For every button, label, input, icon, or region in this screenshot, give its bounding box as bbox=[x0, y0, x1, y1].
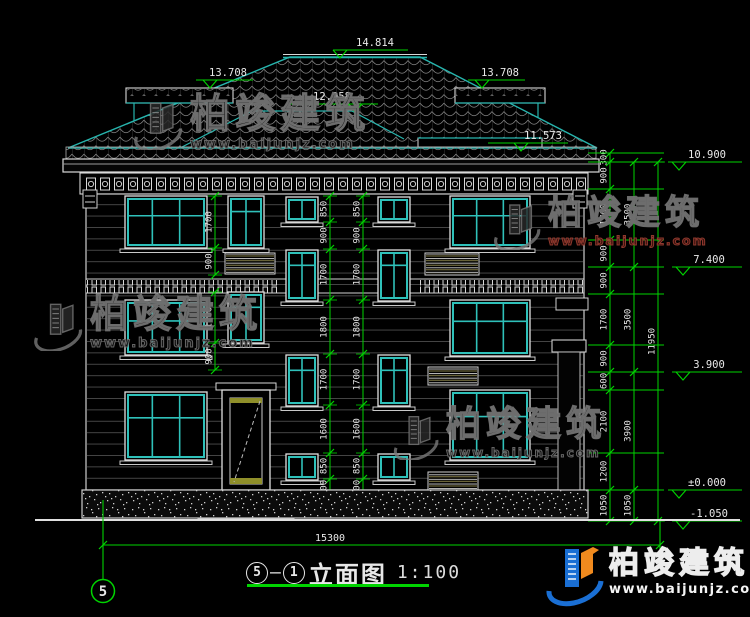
dim-label: 1700 bbox=[320, 369, 330, 391]
window-sill bbox=[223, 249, 269, 253]
window-sill bbox=[120, 356, 212, 360]
title-dash: — bbox=[270, 562, 281, 583]
elevation-label: 11.573 bbox=[524, 130, 562, 142]
main-eave bbox=[63, 147, 599, 172]
door-head-slab bbox=[216, 383, 276, 390]
grid-bubble-label: 5 bbox=[99, 584, 107, 600]
window-sill bbox=[281, 481, 323, 485]
louver-panel bbox=[425, 253, 479, 275]
window bbox=[223, 196, 269, 253]
window-glazing bbox=[453, 393, 527, 457]
brand-name: 柏竣建筑 bbox=[609, 549, 750, 579]
elevation-drawing: 3009001700900900170090060021001200105035… bbox=[0, 0, 750, 617]
brand-logo-block: 柏竣建筑 www.baijunjz.com bbox=[543, 537, 750, 609]
dimension-chain-right_floors: 3500350039001050 bbox=[624, 158, 642, 525]
dimension-chain-right_total: 11950 bbox=[648, 158, 666, 525]
title-underline bbox=[247, 584, 429, 587]
corbel-right bbox=[573, 190, 587, 208]
dim-label: 850 bbox=[320, 458, 330, 474]
dim-label: 850 bbox=[320, 201, 330, 217]
elevation-label: 10.900 bbox=[688, 149, 726, 161]
cad-canvas: 3009001700900900170090060021001200105035… bbox=[0, 0, 750, 617]
entrance-door bbox=[216, 383, 276, 490]
dim-label: 1700 bbox=[205, 211, 215, 233]
louver-panel bbox=[428, 367, 478, 385]
dim-label: 3900 bbox=[624, 420, 634, 442]
dim-label: 1700 bbox=[600, 309, 610, 331]
window-sill bbox=[281, 302, 323, 306]
window-sill bbox=[223, 344, 269, 348]
axis-bubble-left: 5 bbox=[246, 562, 268, 584]
window bbox=[281, 250, 323, 306]
dim-label: 15300 bbox=[315, 533, 345, 544]
dim-label: 1200 bbox=[600, 461, 610, 483]
window bbox=[281, 454, 323, 485]
window bbox=[373, 454, 415, 485]
window bbox=[281, 355, 323, 411]
window-sill bbox=[445, 461, 535, 465]
window bbox=[373, 355, 415, 411]
louver-panel bbox=[225, 253, 275, 274]
elevation-label: -1.050 bbox=[690, 508, 728, 520]
window-sill bbox=[373, 223, 415, 227]
dim-label: 1700 bbox=[205, 307, 215, 329]
dim-label: 2100 bbox=[600, 411, 610, 433]
level-triangle bbox=[676, 372, 690, 380]
dim-label: 1050 bbox=[600, 495, 610, 517]
elevation-label: ±0.000 bbox=[688, 477, 726, 489]
window-sill bbox=[445, 357, 535, 361]
window-sill bbox=[120, 461, 212, 465]
window-sill bbox=[120, 249, 212, 253]
brand-url: www.baijunjz.com bbox=[609, 582, 750, 597]
dim-label: 900 bbox=[205, 348, 215, 364]
window-sill bbox=[281, 223, 323, 227]
elevation-marker-level2: 3.900 bbox=[672, 359, 742, 380]
window-sill bbox=[281, 407, 323, 411]
dim-label: 1700 bbox=[353, 369, 363, 391]
dim-label: 3500 bbox=[624, 204, 634, 226]
dim-label: 1800 bbox=[320, 316, 330, 338]
dim-label: 600 bbox=[600, 373, 610, 389]
window bbox=[445, 196, 535, 253]
plinth bbox=[82, 490, 588, 518]
window-sill bbox=[445, 249, 535, 253]
elevation-label: 12.958 bbox=[313, 91, 351, 103]
right-cornice bbox=[556, 298, 588, 310]
elevation-label: 14.814 bbox=[356, 37, 394, 49]
frieze-band bbox=[80, 173, 588, 194]
level-triangle bbox=[676, 267, 690, 275]
level-triangle bbox=[676, 521, 690, 529]
dim-label: 11950 bbox=[648, 328, 658, 355]
dim-label: 900 bbox=[600, 272, 610, 288]
window bbox=[120, 392, 212, 465]
window bbox=[445, 300, 535, 361]
level-triangle bbox=[672, 490, 686, 498]
dim-label: 1800 bbox=[353, 316, 363, 338]
elevation-label: 3.900 bbox=[693, 359, 725, 371]
brand-logo-icon bbox=[543, 537, 607, 609]
dim-label: 900 bbox=[600, 245, 610, 261]
dim-label: 1600 bbox=[320, 418, 330, 440]
dim-label: 900 bbox=[353, 227, 363, 243]
dim-label: 3500 bbox=[624, 309, 634, 331]
corbel-left bbox=[83, 190, 97, 208]
window bbox=[373, 197, 415, 227]
elevation-label: 13.708 bbox=[209, 67, 247, 79]
dim-label: 900 bbox=[600, 350, 610, 366]
elevation-label: 13.708 bbox=[481, 67, 519, 79]
window-sill bbox=[373, 302, 415, 306]
elevation-marker-ground: ±0.000 bbox=[668, 477, 742, 498]
window-glazing bbox=[128, 395, 204, 457]
window-glazing bbox=[128, 303, 204, 352]
dim-label: 1700 bbox=[353, 264, 363, 286]
dim-label: 900 bbox=[320, 227, 330, 243]
elevation-marker-site: -1.050 bbox=[672, 508, 742, 529]
window-sill bbox=[373, 481, 415, 485]
window-glazing bbox=[128, 199, 204, 245]
louver-panel bbox=[428, 472, 478, 492]
window-glazing bbox=[453, 199, 527, 245]
window bbox=[223, 292, 269, 348]
dim-label: 1050 bbox=[624, 495, 634, 517]
elevation-marker-main_eave: 10.900 bbox=[668, 149, 742, 170]
elevation-marker-level3: 7.400 bbox=[672, 254, 742, 275]
dim-label: 300 bbox=[600, 149, 610, 165]
level-triangle bbox=[672, 162, 686, 170]
elevation-label: 7.400 bbox=[693, 254, 725, 266]
dim-label: 1600 bbox=[353, 418, 363, 440]
window-glazing bbox=[453, 303, 527, 353]
level-triangle bbox=[203, 80, 217, 88]
window bbox=[120, 196, 212, 253]
dim-label: 850 bbox=[353, 458, 363, 474]
axis-bubble-right: 1 bbox=[283, 562, 305, 584]
dim-label: 1700 bbox=[320, 264, 330, 286]
dim-label: 1700 bbox=[600, 204, 610, 226]
window bbox=[445, 390, 535, 465]
dim-label: 900 bbox=[600, 167, 610, 183]
dimension-chain-right_inner: 30090017009009001700900600210012001050 bbox=[600, 149, 618, 525]
window bbox=[281, 197, 323, 227]
scale-label: 1:100 bbox=[397, 562, 461, 583]
window-sill bbox=[373, 407, 415, 411]
window bbox=[373, 250, 415, 306]
dim-label: 900 bbox=[205, 253, 215, 269]
elevation-marker-upper_ledge_right: 13.708 bbox=[468, 67, 525, 88]
window bbox=[120, 300, 212, 360]
dim-label: 850 bbox=[353, 201, 363, 217]
